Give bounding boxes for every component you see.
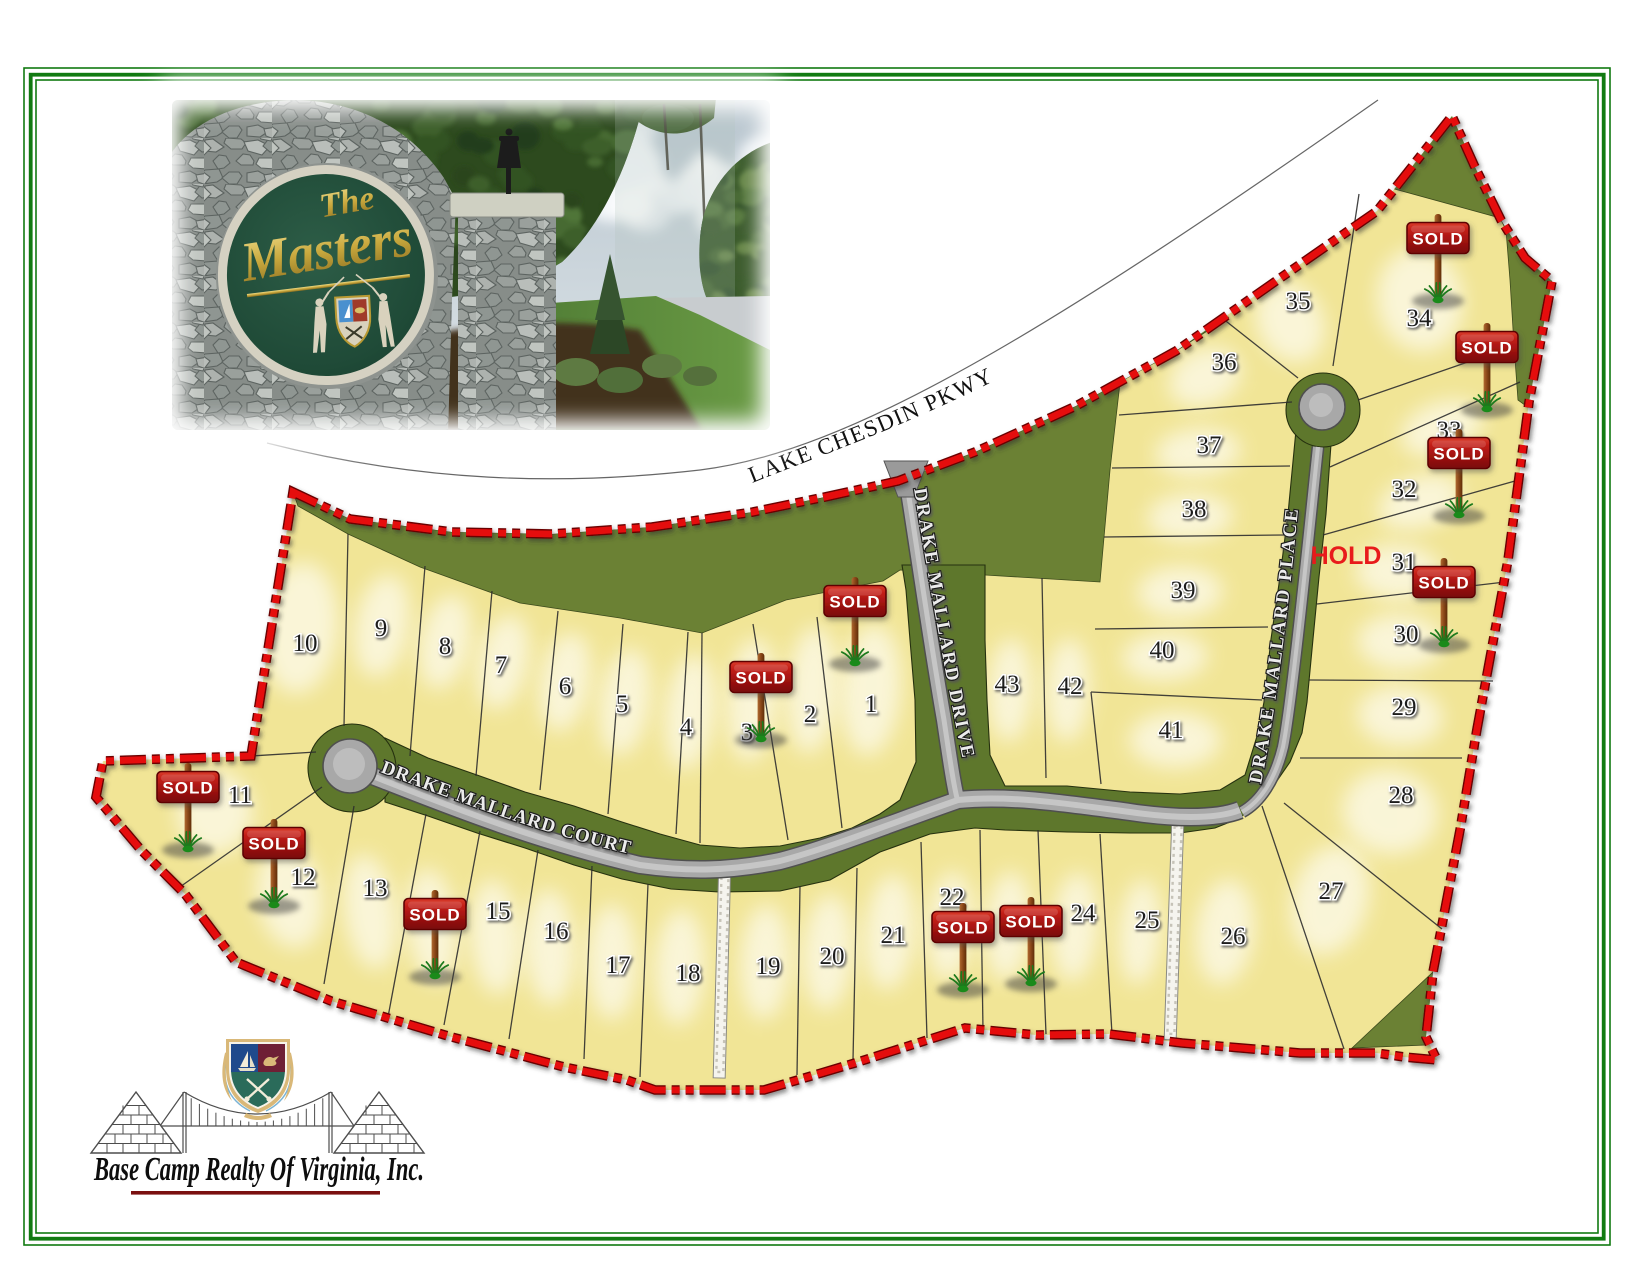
svg-text:41: 41 [1159,717,1184,744]
svg-text:32: 32 [1392,476,1417,503]
svg-text:37: 37 [1197,432,1222,459]
svg-text:40: 40 [1150,637,1175,664]
svg-text:26: 26 [1221,923,1246,950]
svg-text:8: 8 [439,633,452,660]
svg-text:28: 28 [1389,782,1414,809]
svg-text:19: 19 [756,953,781,980]
svg-text:24: 24 [1071,900,1097,927]
svg-text:20: 20 [820,943,845,970]
svg-text:HOLD: HOLD [1311,542,1382,570]
svg-text:38: 38 [1182,496,1207,523]
svg-text:29: 29 [1392,694,1417,721]
svg-text:6: 6 [559,673,572,700]
svg-text:10: 10 [293,630,318,657]
svg-text:39: 39 [1171,577,1196,604]
svg-text:7: 7 [495,652,508,679]
svg-text:25: 25 [1135,907,1160,934]
svg-text:27: 27 [1319,878,1344,905]
svg-text:15: 15 [486,898,511,925]
svg-text:9: 9 [375,615,388,642]
svg-text:2: 2 [804,701,817,728]
svg-text:5: 5 [616,691,629,718]
svg-text:43: 43 [995,671,1020,698]
svg-text:36: 36 [1212,349,1237,376]
svg-text:12: 12 [291,864,316,891]
svg-text:18: 18 [676,960,701,987]
svg-text:42: 42 [1058,673,1083,700]
svg-text:21: 21 [881,922,906,949]
svg-text:30: 30 [1394,621,1419,648]
svg-text:34: 34 [1407,305,1433,332]
svg-text:35: 35 [1286,288,1311,315]
svg-text:4: 4 [680,714,693,741]
svg-text:13: 13 [363,875,388,902]
svg-text:17: 17 [606,952,631,979]
svg-text:Base Camp Realty Of Virginia,: Base Camp Realty Of Virginia, Inc. [93,1151,424,1188]
svg-text:11: 11 [228,782,252,809]
svg-text:16: 16 [544,918,569,945]
svg-text:1: 1 [865,691,878,718]
